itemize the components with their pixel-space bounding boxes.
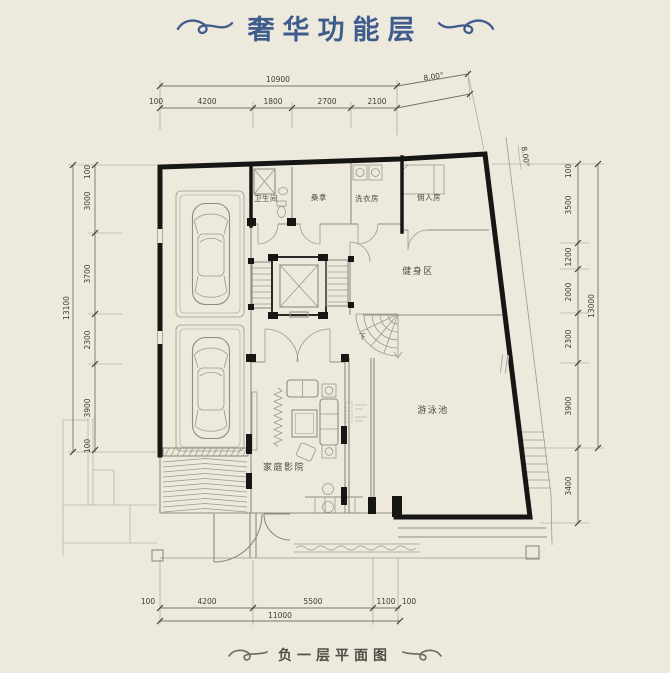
page-title: 奢华功能层 (0, 8, 670, 47)
dim-left-seg-1: 3000 (83, 191, 92, 210)
dim-bottom-seg-1: 4200 (197, 597, 216, 606)
title-text: 奢华功能层 (248, 8, 423, 47)
caption-flourish-right-icon (402, 648, 442, 662)
dim-left-total: 13100 (62, 296, 71, 320)
dim-right-total: 13000 (587, 294, 596, 318)
curtain-zigzag (274, 388, 282, 447)
dim-top-seg-1: 4200 (197, 97, 216, 106)
stool-2 (323, 502, 334, 513)
floor-plan-drawing: 10900 8.00° 100 4200 1800 2700 2100 1310… (0, 0, 670, 673)
room-label-bathroom: 卫生间 (254, 193, 278, 203)
flourish-left-icon (176, 15, 234, 41)
room-label-gym: 健身区 (402, 265, 434, 277)
dim-left-seg-5: 100 (83, 439, 92, 454)
dim-top-total: 10900 (266, 75, 290, 84)
toilet (277, 201, 286, 206)
dim-top-seg-0: 100 (149, 97, 164, 106)
dim-top-seg-2: 1800 (263, 97, 282, 106)
dim-right-seg-3: 2000 (564, 282, 573, 301)
dim-left-seg-2: 3700 (83, 264, 92, 283)
dim-bottom-total: 11000 (268, 611, 292, 620)
caption-flourish-left-icon (228, 648, 268, 662)
dim-right-angle: 8.00° (519, 146, 531, 168)
car-2 (193, 338, 230, 439)
laundry-appliances (353, 165, 382, 180)
wall-windows (156, 229, 509, 373)
dimension-texts: 10900 8.00° 100 4200 1800 2700 2100 1310… (62, 70, 596, 620)
terrace (160, 528, 547, 558)
exterior-landscaping (63, 418, 163, 561)
dim-right-seg-4: 2300 (564, 329, 573, 348)
door-arcs (258, 224, 428, 362)
dim-left-seg-0: 100 (83, 165, 92, 180)
garage (176, 191, 244, 451)
dryer (369, 165, 382, 180)
dim-right-seg-0: 100 (564, 164, 573, 179)
dim-left-seg-3: 2300 (83, 330, 92, 349)
dim-bottom-seg-0: 100 (141, 597, 156, 606)
dim-right-seg-5: 3900 (564, 396, 573, 415)
dim-bottom-seg-3: 1100 (376, 597, 395, 606)
floorplan-page: { "title": "奢华功能层", "caption": "负一层平面图",… (0, 0, 670, 673)
maid-bed (401, 165, 444, 194)
room-label-maid-room: 佣人房 (417, 192, 441, 202)
dim-bottom-seg-4: 100 (402, 597, 417, 606)
room-label-pool: 游泳池 (417, 404, 449, 416)
room-labels: 卫生间 桑拿 洗衣房 佣人房 健身区 游泳池 家庭影院 下 (254, 192, 449, 473)
screen (252, 392, 257, 450)
room-label-home-theater: 家庭影院 (263, 461, 305, 473)
dim-top-seg-4: 2100 (367, 97, 386, 106)
basin (279, 188, 288, 195)
stool-1 (323, 484, 334, 495)
car-1 (193, 204, 230, 305)
sofa-side (320, 399, 338, 445)
elevator-core (248, 254, 354, 319)
home-theater-furniture (252, 380, 338, 513)
dim-left-seg-4: 3900 (83, 398, 92, 417)
washer (353, 165, 367, 180)
speaker-bottom (322, 445, 336, 458)
room-label-sauna: 桑拿 (311, 192, 327, 202)
tilted-seat (296, 442, 316, 461)
dim-top-angle: 8.00° (423, 70, 445, 82)
dim-right-extension: 3400 (564, 476, 573, 495)
stair-left (252, 262, 272, 308)
dim-top-seg-3: 2700 (317, 97, 336, 106)
caption: 负一层平面图 (0, 645, 670, 665)
caption-text: 负一层平面图 (278, 645, 392, 665)
water-edge-wave (296, 546, 416, 550)
speaker-top (322, 384, 336, 397)
room-label-laundry: 洗衣房 (355, 193, 379, 203)
dim-right-seg-1: 3500 (564, 195, 573, 214)
stair-down-label: 下 (359, 333, 368, 341)
dim-bottom-seg-2: 5500 (303, 597, 322, 606)
gate-door-arcs (214, 513, 290, 562)
dim-right-seg-2: 1200 (564, 247, 573, 266)
driveway-ramp (160, 448, 248, 513)
flourish-right-icon (437, 15, 495, 41)
stair-right (326, 260, 348, 306)
